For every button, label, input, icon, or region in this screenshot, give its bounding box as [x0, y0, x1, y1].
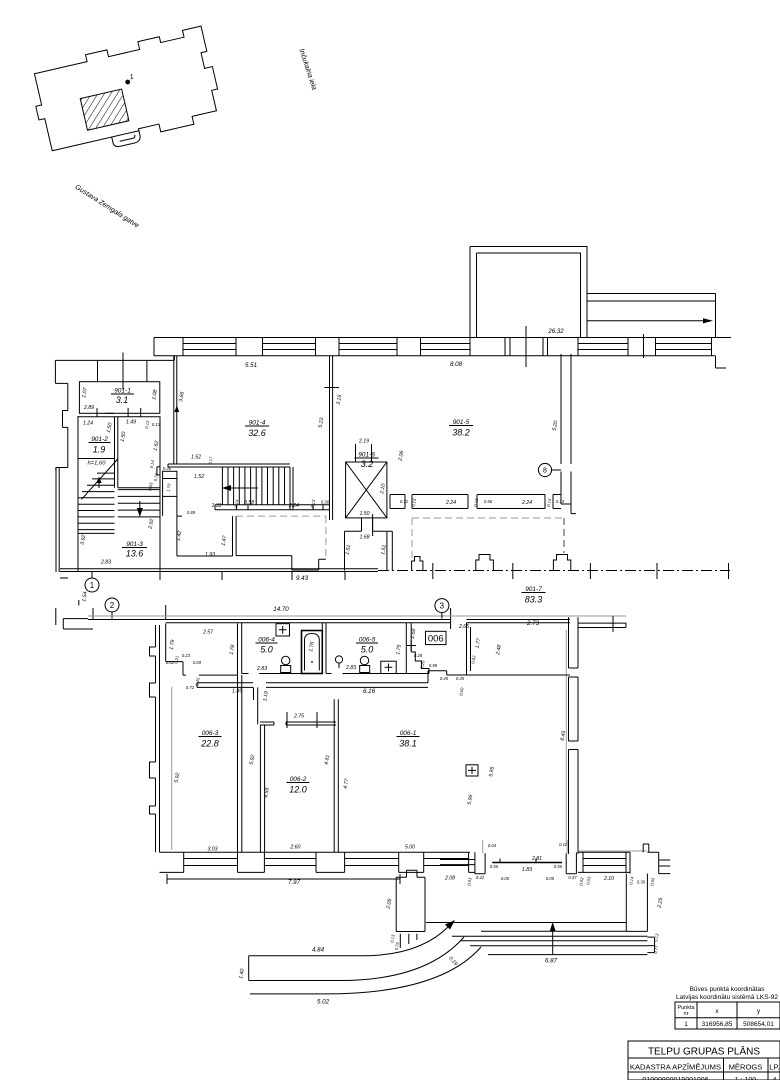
svg-text:0.11: 0.11 — [559, 842, 567, 847]
svg-text:0.55: 0.55 — [490, 864, 499, 869]
svg-text:nr: nr — [684, 1011, 689, 1017]
svg-text:2.10: 2.10 — [603, 876, 614, 882]
svg-text:3: 3 — [440, 602, 445, 611]
svg-text:0.05: 0.05 — [546, 876, 555, 881]
svg-text:006-4: 006-4 — [258, 637, 275, 644]
svg-text:0.13: 0.13 — [152, 422, 161, 427]
svg-text:2.24: 2.24 — [521, 500, 532, 506]
svg-text:1.50: 1.50 — [359, 511, 369, 517]
svg-text:901-3: 901-3 — [126, 541, 143, 548]
svg-text:2.73: 2.73 — [526, 620, 540, 627]
svg-text:13.6: 13.6 — [126, 549, 144, 559]
svg-text:38.1: 38.1 — [399, 739, 417, 749]
svg-text:0.30: 0.30 — [637, 880, 646, 885]
svg-text:0.23: 0.23 — [182, 653, 191, 658]
svg-text:0.45: 0.45 — [440, 676, 449, 681]
svg-text:32.6: 32.6 — [248, 428, 266, 438]
svg-text:0.55: 0.55 — [554, 864, 563, 869]
svg-text:0.58: 0.58 — [244, 500, 254, 506]
svg-text:0.72: 0.72 — [186, 685, 195, 690]
svg-text:2: 2 — [110, 601, 115, 610]
svg-text:006-3: 006-3 — [202, 730, 219, 737]
svg-text:2.83: 2.83 — [256, 666, 267, 672]
svg-text:KADASTRA APZĪMĒJUMS: KADASTRA APZĪMĒJUMS — [630, 1063, 721, 1072]
svg-text:2.83: 2.83 — [345, 665, 356, 671]
svg-text:2.24: 2.24 — [445, 500, 456, 506]
svg-text:12.0: 12.0 — [289, 785, 307, 795]
svg-text:6.87: 6.87 — [545, 958, 558, 965]
svg-text:0.04: 0.04 — [488, 843, 497, 848]
svg-text:22.8: 22.8 — [200, 739, 219, 749]
svg-text:2.65: 2.65 — [458, 624, 469, 630]
svg-text:0.13: 0.13 — [556, 499, 565, 504]
svg-text:006: 006 — [428, 634, 444, 645]
svg-text:2.08: 2.08 — [444, 876, 455, 882]
svg-text:6.16: 6.16 — [363, 688, 376, 695]
svg-text:0.42: 0.42 — [476, 875, 485, 880]
svg-text:Būves punkta koordinātas: Būves punkta koordinātas — [690, 986, 766, 993]
svg-text:5.0: 5.0 — [361, 645, 374, 655]
svg-text:0.05: 0.05 — [501, 876, 510, 881]
svg-text:5.02: 5.02 — [317, 999, 330, 1006]
svg-text:0.30: 0.30 — [321, 500, 330, 505]
svg-text:7.97: 7.97 — [288, 879, 301, 886]
svg-text:1.83: 1.83 — [522, 867, 532, 873]
svg-text:0.28: 0.28 — [414, 653, 423, 658]
svg-text:5.51: 5.51 — [245, 362, 257, 369]
svg-text:2.60: 2.60 — [289, 845, 300, 851]
svg-text:2.57: 2.57 — [202, 630, 214, 636]
svg-text:0.59: 0.59 — [429, 663, 438, 668]
svg-text:83.3: 83.3 — [525, 595, 543, 605]
svg-text:4.84: 4.84 — [312, 947, 325, 954]
svg-text:9.43: 9.43 — [296, 575, 309, 582]
svg-text:1.49: 1.49 — [126, 420, 136, 426]
svg-text:38.2: 38.2 — [452, 428, 470, 438]
svg-text:h=1,60: h=1,60 — [88, 461, 107, 467]
svg-text:3.03: 3.03 — [207, 847, 217, 853]
svg-text:14.70: 14.70 — [273, 606, 289, 613]
svg-text:316956,85: 316956,85 — [702, 1021, 733, 1028]
svg-text:0.36: 0.36 — [163, 466, 172, 471]
svg-text:Latvijas koordinātu sistēmā LK: Latvijas koordinātu sistēmā LKS-92 — [676, 994, 778, 1001]
svg-text:1.52: 1.52 — [191, 455, 201, 461]
svg-text:0.56: 0.56 — [484, 499, 493, 504]
svg-text:26.32: 26.32 — [547, 328, 564, 335]
svg-text:1.9: 1.9 — [93, 445, 106, 455]
svg-text:1: 1 — [90, 581, 95, 590]
svg-text:2.81: 2.81 — [531, 856, 542, 862]
svg-text:2.19: 2.19 — [358, 439, 369, 445]
svg-text:901-7: 901-7 — [525, 586, 542, 593]
svg-text:2.24: 2.24 — [288, 503, 299, 509]
svg-text:508654,01: 508654,01 — [743, 1021, 774, 1028]
svg-text:1.24: 1.24 — [83, 421, 93, 427]
svg-text:1.68: 1.68 — [359, 535, 369, 541]
svg-text:0.89: 0.89 — [187, 510, 196, 515]
svg-text:0.69: 0.69 — [193, 660, 202, 665]
svg-text:2.75: 2.75 — [293, 714, 304, 720]
svg-text:8: 8 — [543, 468, 547, 475]
svg-text:006-1: 006-1 — [400, 730, 417, 737]
svg-text:5.0: 5.0 — [260, 645, 273, 655]
svg-text:901-5: 901-5 — [453, 419, 470, 426]
svg-text:TELPU GRUPAS PLĀNS: TELPU GRUPAS PLĀNS — [648, 1046, 760, 1058]
svg-text:1: 1 — [684, 1021, 688, 1028]
svg-text:901-6: 901-6 — [358, 452, 375, 459]
svg-text:1.31: 1.31 — [211, 503, 221, 509]
svg-text:0.72: 0.72 — [400, 499, 409, 504]
svg-text:901-4: 901-4 — [249, 420, 266, 427]
svg-text:006-5: 006-5 — [359, 637, 376, 644]
svg-text:2.83: 2.83 — [100, 560, 111, 566]
svg-text:1.93: 1.93 — [205, 552, 215, 558]
svg-text:0.37: 0.37 — [568, 875, 577, 880]
svg-text:5.00: 5.00 — [405, 845, 415, 851]
svg-text:3.1: 3.1 — [116, 395, 129, 405]
svg-text:1.52: 1.52 — [194, 474, 204, 480]
svg-text:LP.: LP. — [769, 1063, 779, 1072]
svg-text:006-2: 006-2 — [290, 776, 307, 783]
svg-text:3.2: 3.2 — [361, 459, 374, 469]
svg-text:0.45: 0.45 — [456, 676, 465, 681]
svg-text:MĒROGS: MĒROGS — [729, 1063, 763, 1072]
svg-text:901-2: 901-2 — [91, 436, 108, 443]
svg-text:8.08: 8.08 — [450, 361, 463, 368]
svg-text:2.89: 2.89 — [83, 405, 94, 411]
